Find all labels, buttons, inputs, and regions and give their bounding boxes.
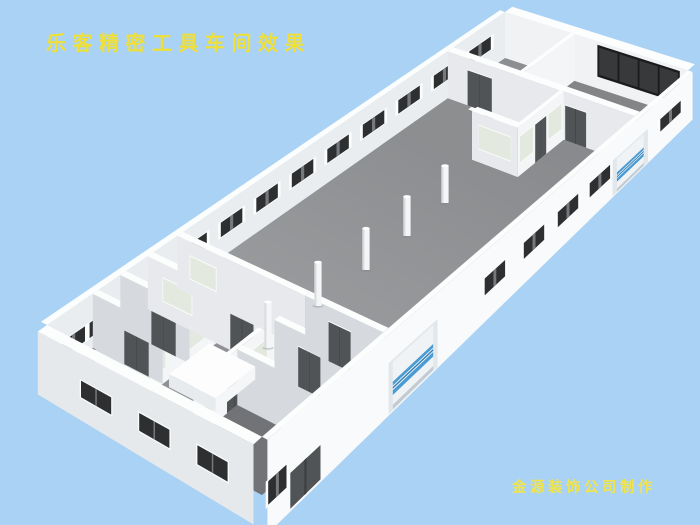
window-divider (301, 165, 304, 181)
column-shade (362, 228, 364, 270)
window-divider (533, 232, 536, 250)
column-cap (441, 164, 448, 167)
render-credit: 金源装饰公司制作 (512, 476, 656, 497)
workshop-3d-render (0, 0, 700, 525)
window-divider (337, 141, 340, 157)
window-divider (230, 214, 233, 231)
column-shade (403, 197, 405, 236)
window-divider (95, 389, 97, 407)
column-shade (314, 262, 316, 306)
column-cap (362, 227, 369, 230)
column-cap (264, 301, 271, 304)
window-divider (154, 421, 156, 440)
window-divider (598, 173, 601, 190)
window-divider (212, 453, 214, 473)
door-split (304, 458, 306, 495)
render-title: 乐客精密工具车间效果 (46, 27, 311, 56)
window-divider (493, 268, 496, 287)
window-divider (407, 92, 410, 108)
window-divider (266, 190, 269, 206)
column-shade (441, 166, 443, 203)
window-divider (276, 472, 279, 498)
window-divider (478, 43, 481, 58)
column-cap (314, 261, 321, 264)
workshop-render-stage: 乐客精密工具车间效果 金源装饰公司制作 (0, 0, 700, 525)
door-split (575, 109, 576, 144)
window-divider (443, 67, 446, 82)
window-divider (567, 202, 570, 219)
column-shade (264, 302, 266, 348)
column-cap (403, 195, 410, 198)
window-divider (372, 116, 375, 132)
